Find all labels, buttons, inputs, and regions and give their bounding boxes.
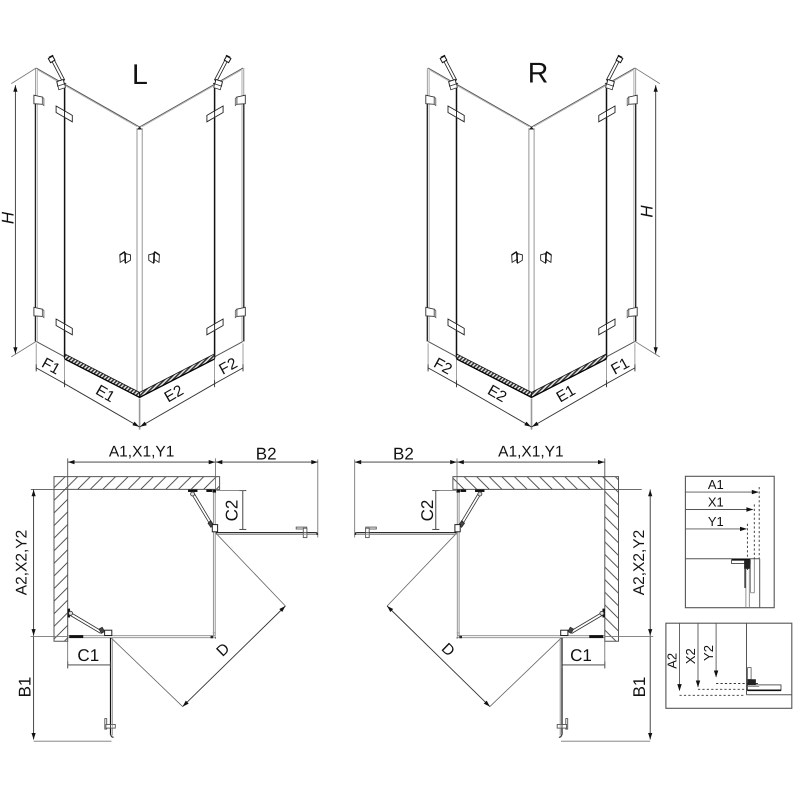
- svg-text:C2: C2: [223, 500, 242, 522]
- svg-text:B2: B2: [393, 444, 414, 463]
- svg-text:B1: B1: [16, 677, 35, 698]
- svg-text:H: H: [638, 205, 657, 218]
- svg-text:X2: X2: [683, 648, 698, 664]
- svg-text:H: H: [0, 211, 17, 224]
- svg-text:C2: C2: [418, 500, 437, 522]
- svg-text:B2: B2: [256, 444, 277, 463]
- svg-text:L: L: [132, 59, 148, 91]
- svg-text:A1,X1,Y1: A1,X1,Y1: [498, 443, 564, 460]
- svg-text:A2,X2,Y2: A2,X2,Y2: [14, 530, 31, 596]
- svg-text:R: R: [528, 58, 549, 90]
- svg-text:X1: X1: [708, 495, 724, 510]
- svg-text:Y2: Y2: [701, 645, 716, 661]
- svg-text:C1: C1: [77, 646, 99, 665]
- svg-text:Y1: Y1: [708, 514, 724, 529]
- svg-text:A2,X2,Y2: A2,X2,Y2: [631, 530, 648, 596]
- svg-text:B1: B1: [630, 677, 649, 698]
- svg-text:A1: A1: [708, 477, 724, 492]
- svg-text:A1,X1,Y1: A1,X1,Y1: [109, 443, 175, 460]
- svg-text:C1: C1: [570, 646, 592, 665]
- svg-text:A2: A2: [664, 653, 679, 669]
